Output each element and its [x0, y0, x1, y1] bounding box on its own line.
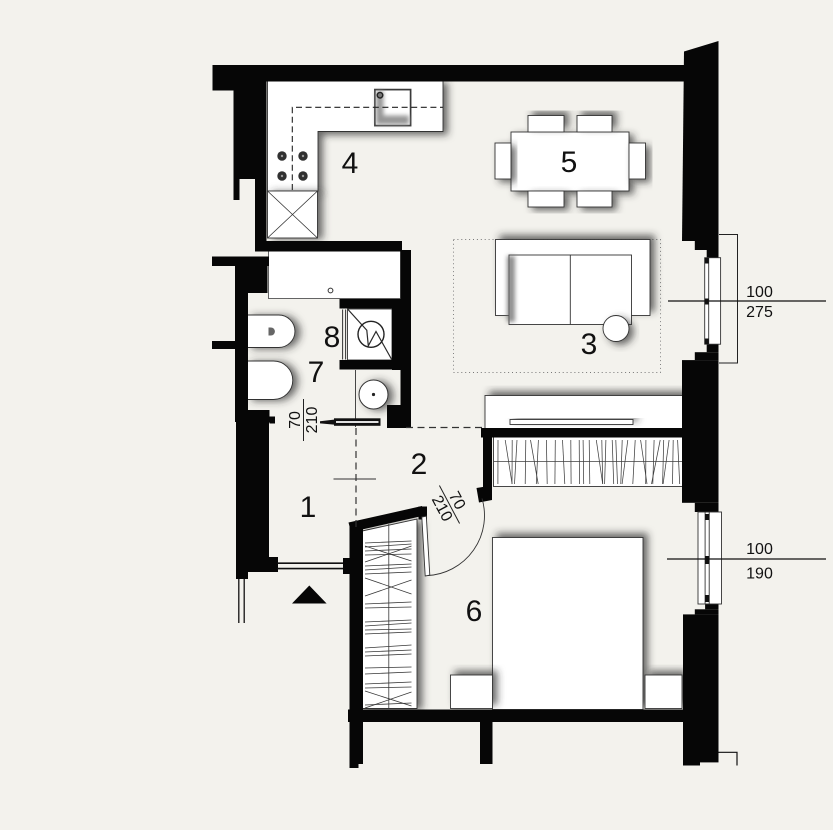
svg-text:6: 6	[466, 595, 483, 628]
svg-text:275: 275	[746, 304, 773, 321]
svg-text:5: 5	[561, 146, 578, 179]
svg-text:2: 2	[411, 448, 428, 481]
svg-text:1: 1	[300, 491, 317, 524]
svg-text:210: 210	[304, 407, 321, 434]
svg-text:7: 7	[308, 356, 325, 389]
svg-text:70: 70	[287, 411, 304, 429]
svg-text:190: 190	[746, 566, 773, 583]
svg-text:3: 3	[581, 328, 598, 361]
svg-text:4: 4	[342, 147, 359, 180]
svg-text:8: 8	[324, 321, 341, 354]
svg-text:100: 100	[746, 284, 773, 301]
svg-text:100: 100	[746, 541, 773, 558]
